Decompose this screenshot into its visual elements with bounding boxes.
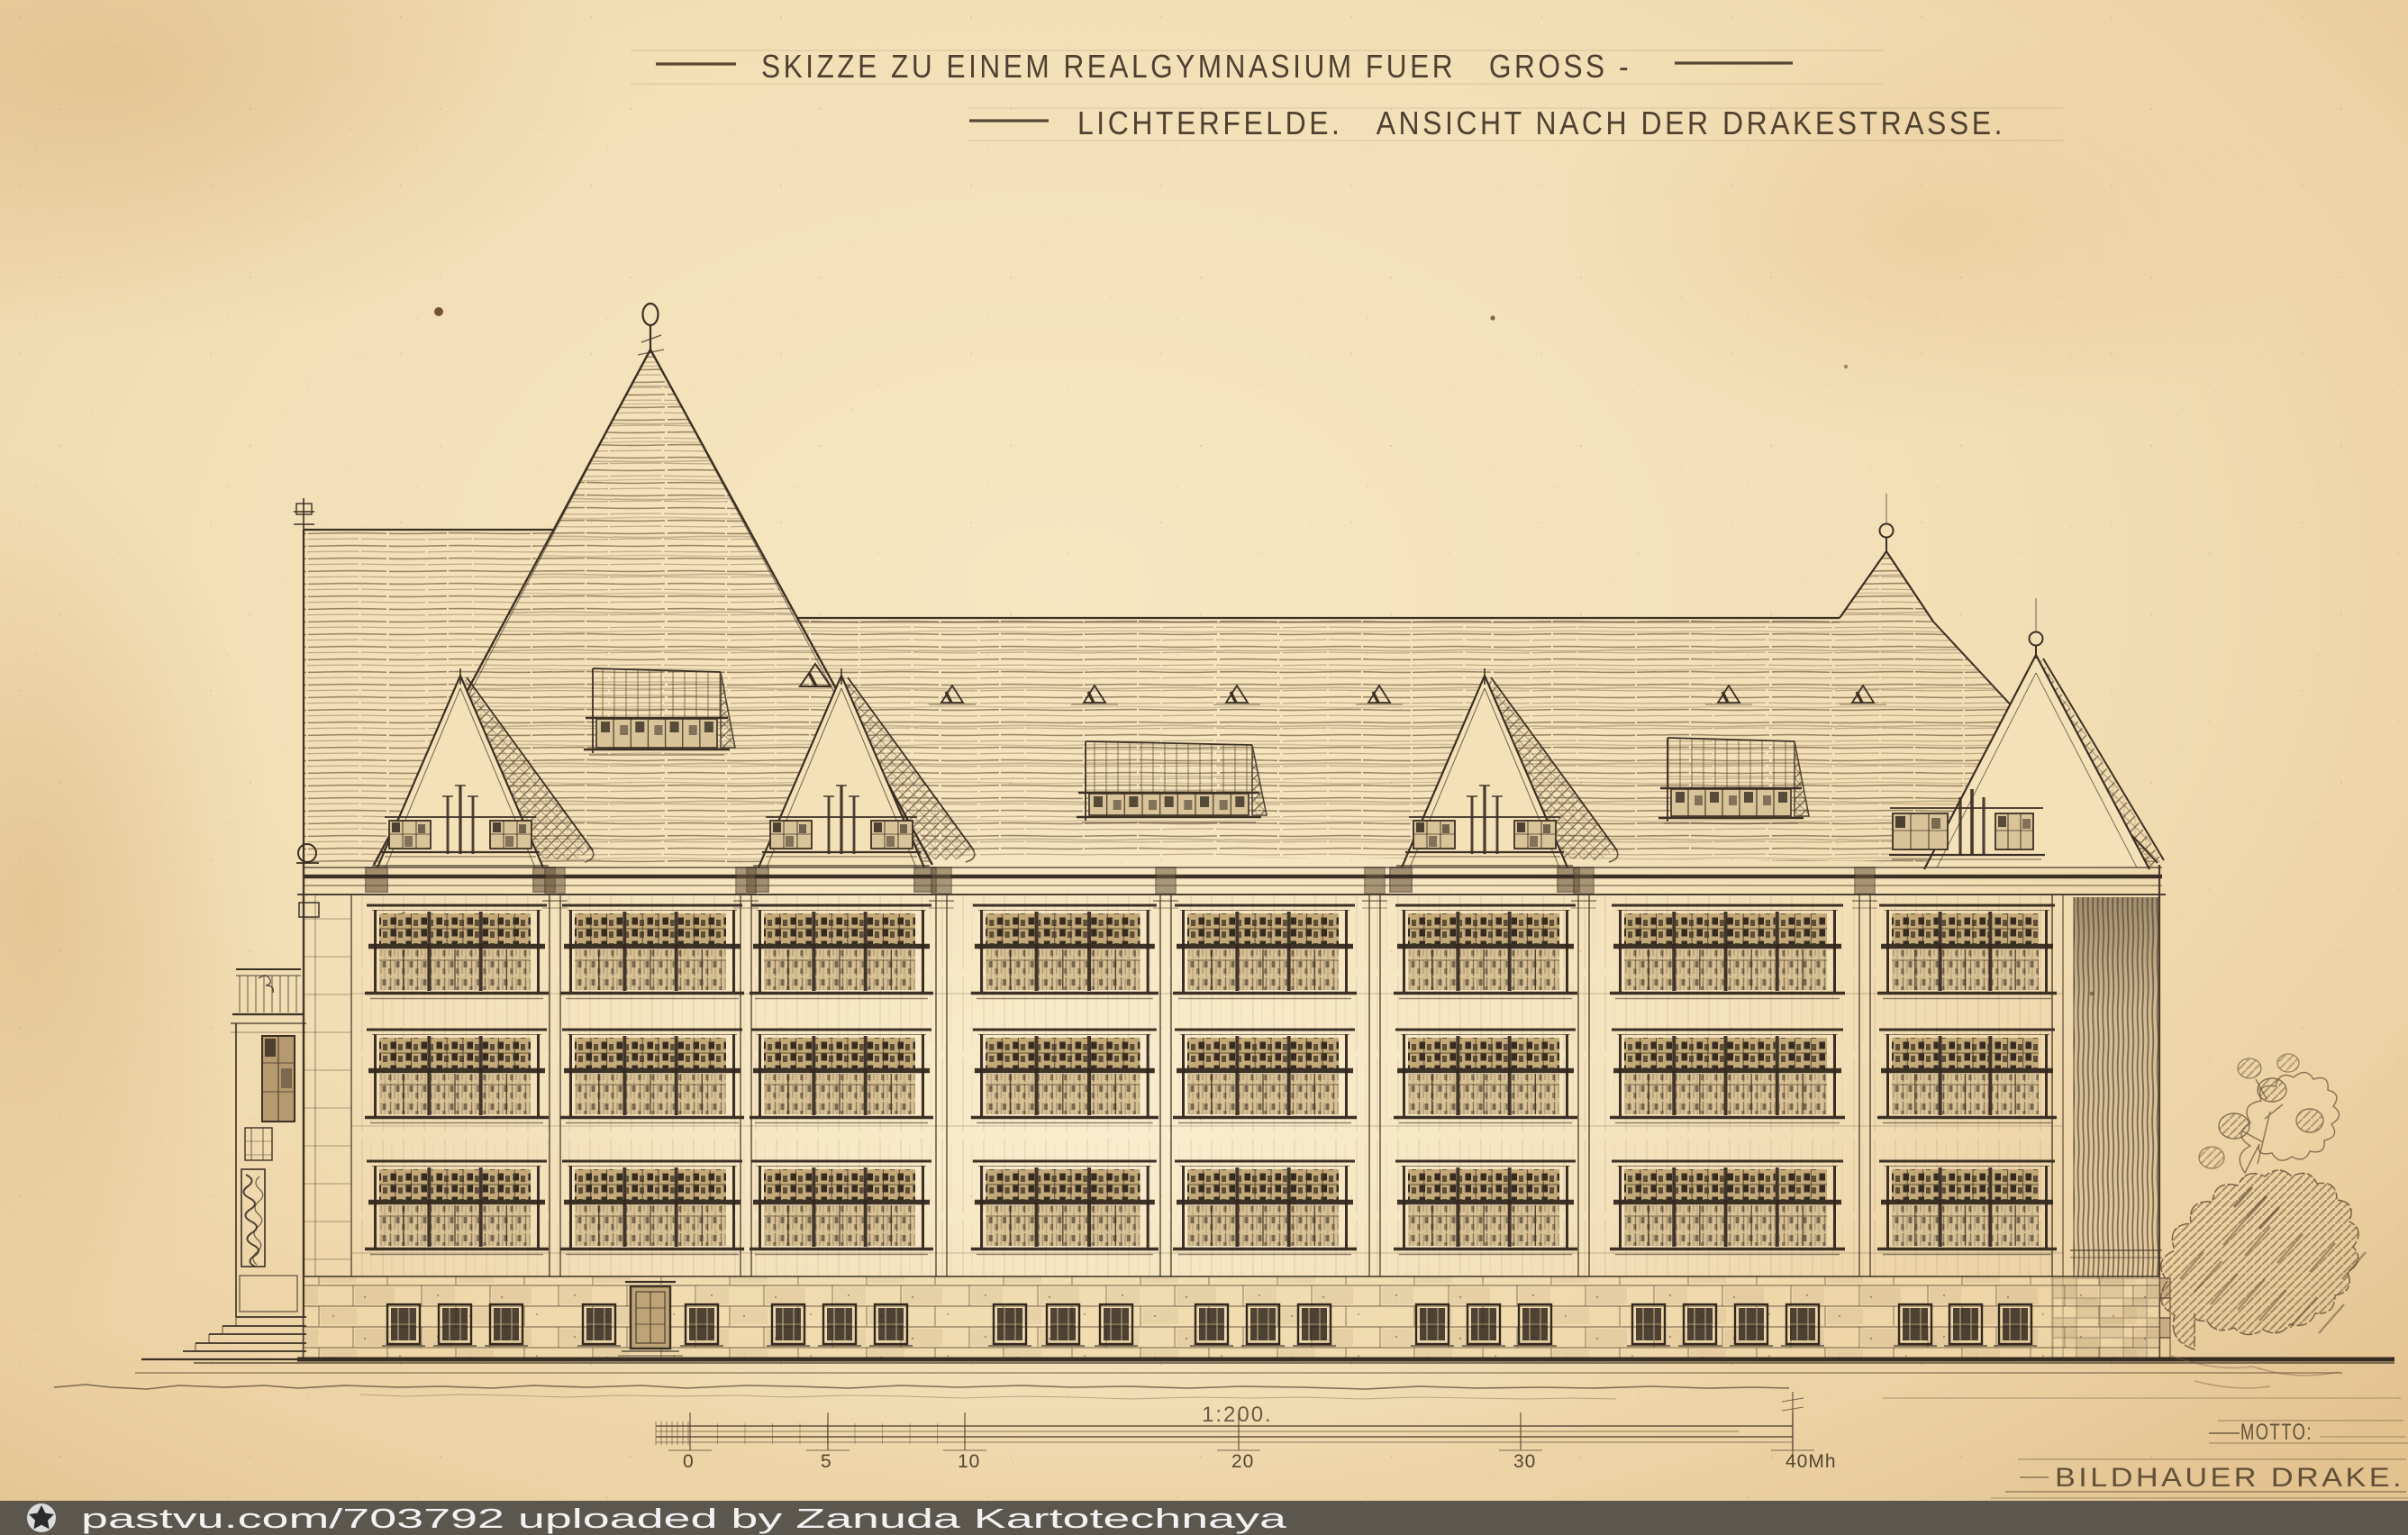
svg-text:0: 0 [683, 1451, 695, 1472]
svg-text:20: 20 [1231, 1451, 1254, 1472]
svg-text:5: 5 [821, 1451, 832, 1472]
svg-text:MOTTO:: MOTTO: [2240, 1420, 2313, 1445]
svg-text:30: 30 [1513, 1451, 1536, 1472]
svg-text:pastvu.com/703792 uploaded by: pastvu.com/703792 uploaded by Zanuda Kar… [81, 1503, 1287, 1534]
svg-text:LICHTERFELDE. ANSICHT NACH D: LICHTERFELDE. ANSICHT NACH DER DRAKESTRA… [1077, 104, 2005, 141]
svg-text:BILDHAUER DRAKE.: BILDHAUER DRAKE. [2055, 1463, 2404, 1493]
svg-text:1:200.: 1:200. [1202, 1403, 1273, 1427]
svg-text:SKIZZE ZU EINEM REALGYMNASIUM: SKIZZE ZU EINEM REALGYMNASIUM FUER GROSS… [761, 48, 1631, 85]
svg-text:10: 10 [958, 1451, 980, 1472]
